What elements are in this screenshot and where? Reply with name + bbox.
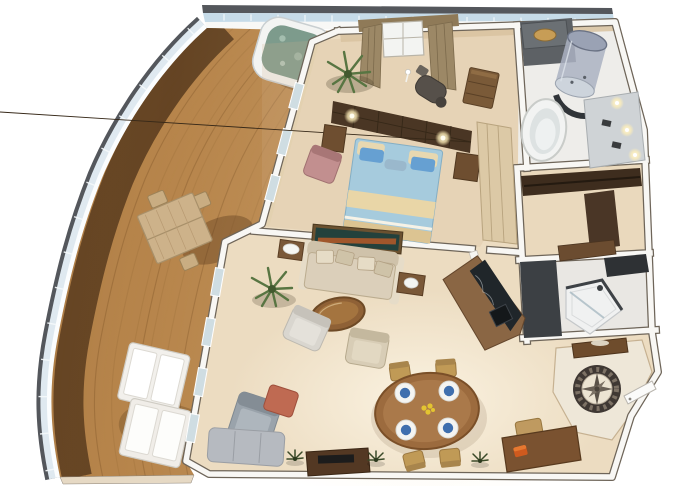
plate-blue — [400, 388, 410, 398]
reading-lamp — [441, 136, 446, 141]
compass-hub — [594, 386, 599, 391]
suite-floor-plan — [0, 0, 680, 486]
palm-center — [344, 70, 352, 78]
nightstand-right — [453, 152, 480, 181]
palm-center — [268, 285, 276, 293]
suite-floor-plan-image — [0, 0, 680, 486]
compass-rose-medallion — [573, 365, 621, 413]
mirror-light — [625, 128, 629, 132]
side-table-left — [278, 239, 304, 260]
corner-sofa — [207, 427, 285, 466]
console-decor — [591, 340, 609, 346]
dining-chair-bottom-right — [439, 448, 461, 468]
guest-bath-dark-floor — [520, 260, 562, 338]
armchair-beige — [345, 327, 391, 369]
wardrobe-sliding-doors — [477, 122, 517, 244]
tv-panel — [318, 454, 354, 463]
basin — [534, 29, 556, 41]
plate-blue — [401, 425, 411, 435]
reading-lamp — [350, 114, 355, 119]
plate-blue — [444, 386, 454, 396]
mirror-light — [633, 153, 637, 157]
sofa-pillow — [357, 257, 375, 271]
sofa-pillow — [316, 250, 333, 263]
plate-blue — [443, 423, 453, 433]
shower-head — [597, 285, 603, 291]
mirror-light — [615, 101, 619, 105]
door-handle — [629, 398, 632, 401]
top-rail-frame — [202, 5, 613, 14]
side-table-right — [397, 272, 426, 295]
